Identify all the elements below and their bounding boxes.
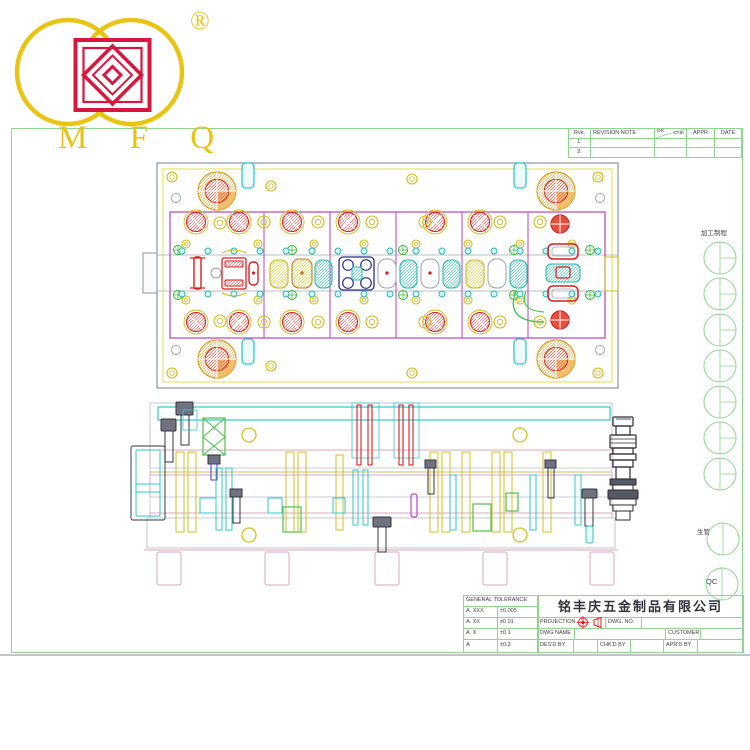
logo-text-mfq: M F Q <box>58 120 231 157</box>
revision-row1-drchk <box>655 139 687 148</box>
revision-col-dr: DR. <box>657 130 665 135</box>
revision-row1-note <box>591 139 655 148</box>
approved-by-label: APR'D BY <box>664 640 698 652</box>
revision-row2-note <box>591 148 655 157</box>
tolerance-value: ±0.3 <box>498 640 538 652</box>
revision-row2-drchk <box>655 148 687 157</box>
title-block: 铭丰庆五金制品有限公司 PROJECTION DWG. NO. DWG NAME… <box>537 595 744 653</box>
drawing-sheet: ® M F Q Rve. REVISION NOTE DR. CHK APPR … <box>0 0 750 750</box>
revision-col-dr-chk: DR. CHK <box>655 129 687 139</box>
revision-col-chk: CHK <box>674 132 684 137</box>
revision-col-appr: APPR <box>687 129 715 139</box>
tolerance-grade: A. X <box>464 629 498 640</box>
tolerance-grade: A. XX <box>464 618 498 629</box>
tolerance-grade: A <box>464 640 498 652</box>
checked-by-label: CHK'D BY <box>598 640 631 652</box>
tolerance-value: ±0.005 <box>498 607 538 618</box>
revision-col-date: DATE <box>715 129 741 139</box>
dwg-name-label: DWG NAME <box>538 629 575 640</box>
revision-row2-appr <box>687 148 715 157</box>
projection-label: PROJECTION <box>538 618 606 629</box>
process-column-label: 加工制程 <box>701 231 727 238</box>
customer-label: CUSTOMER: <box>666 629 701 640</box>
revision-table: Rve. REVISION NOTE DR. CHK APPR DATE 1. … <box>568 128 742 158</box>
tolerance-table: GENERAL TOLERANCE A. XXX ±0.005 A. XX ±0… <box>463 595 539 653</box>
revision-row1-number: 1. <box>569 139 591 148</box>
customer-value <box>701 629 743 640</box>
registered-trademark-icon: ® <box>190 6 210 36</box>
revision-row1-date <box>715 139 741 148</box>
company-name: 铭丰庆五金制品有限公司 <box>538 596 743 618</box>
designed-by-value <box>574 640 598 652</box>
designed-by-label: DES'D BY <box>538 640 574 652</box>
tolerance-value: ±0.01 <box>498 618 538 629</box>
dwg-no-value <box>642 618 743 629</box>
page-edge-line <box>0 654 750 656</box>
revision-col-note: REVISION NOTE <box>591 129 655 139</box>
revision-row2-number: 2. <box>569 148 591 157</box>
revision-row1-appr <box>687 139 715 148</box>
sheet-border-frame <box>11 128 743 653</box>
approved-by-value <box>698 640 743 652</box>
production-label: 生管 <box>697 530 710 537</box>
tolerance-grade: A. XXX <box>464 607 498 618</box>
tolerance-header: GENERAL TOLERANCE <box>464 596 538 607</box>
tolerance-value: ±0.1 <box>498 629 538 640</box>
dwg-no-label: DWG. NO. <box>606 618 642 629</box>
revision-row2-date <box>715 148 741 157</box>
dwg-name-value <box>575 629 666 640</box>
checked-by-value <box>631 640 664 652</box>
revision-col-rev: Rve. <box>569 129 591 139</box>
qc-label: QC <box>706 578 717 586</box>
